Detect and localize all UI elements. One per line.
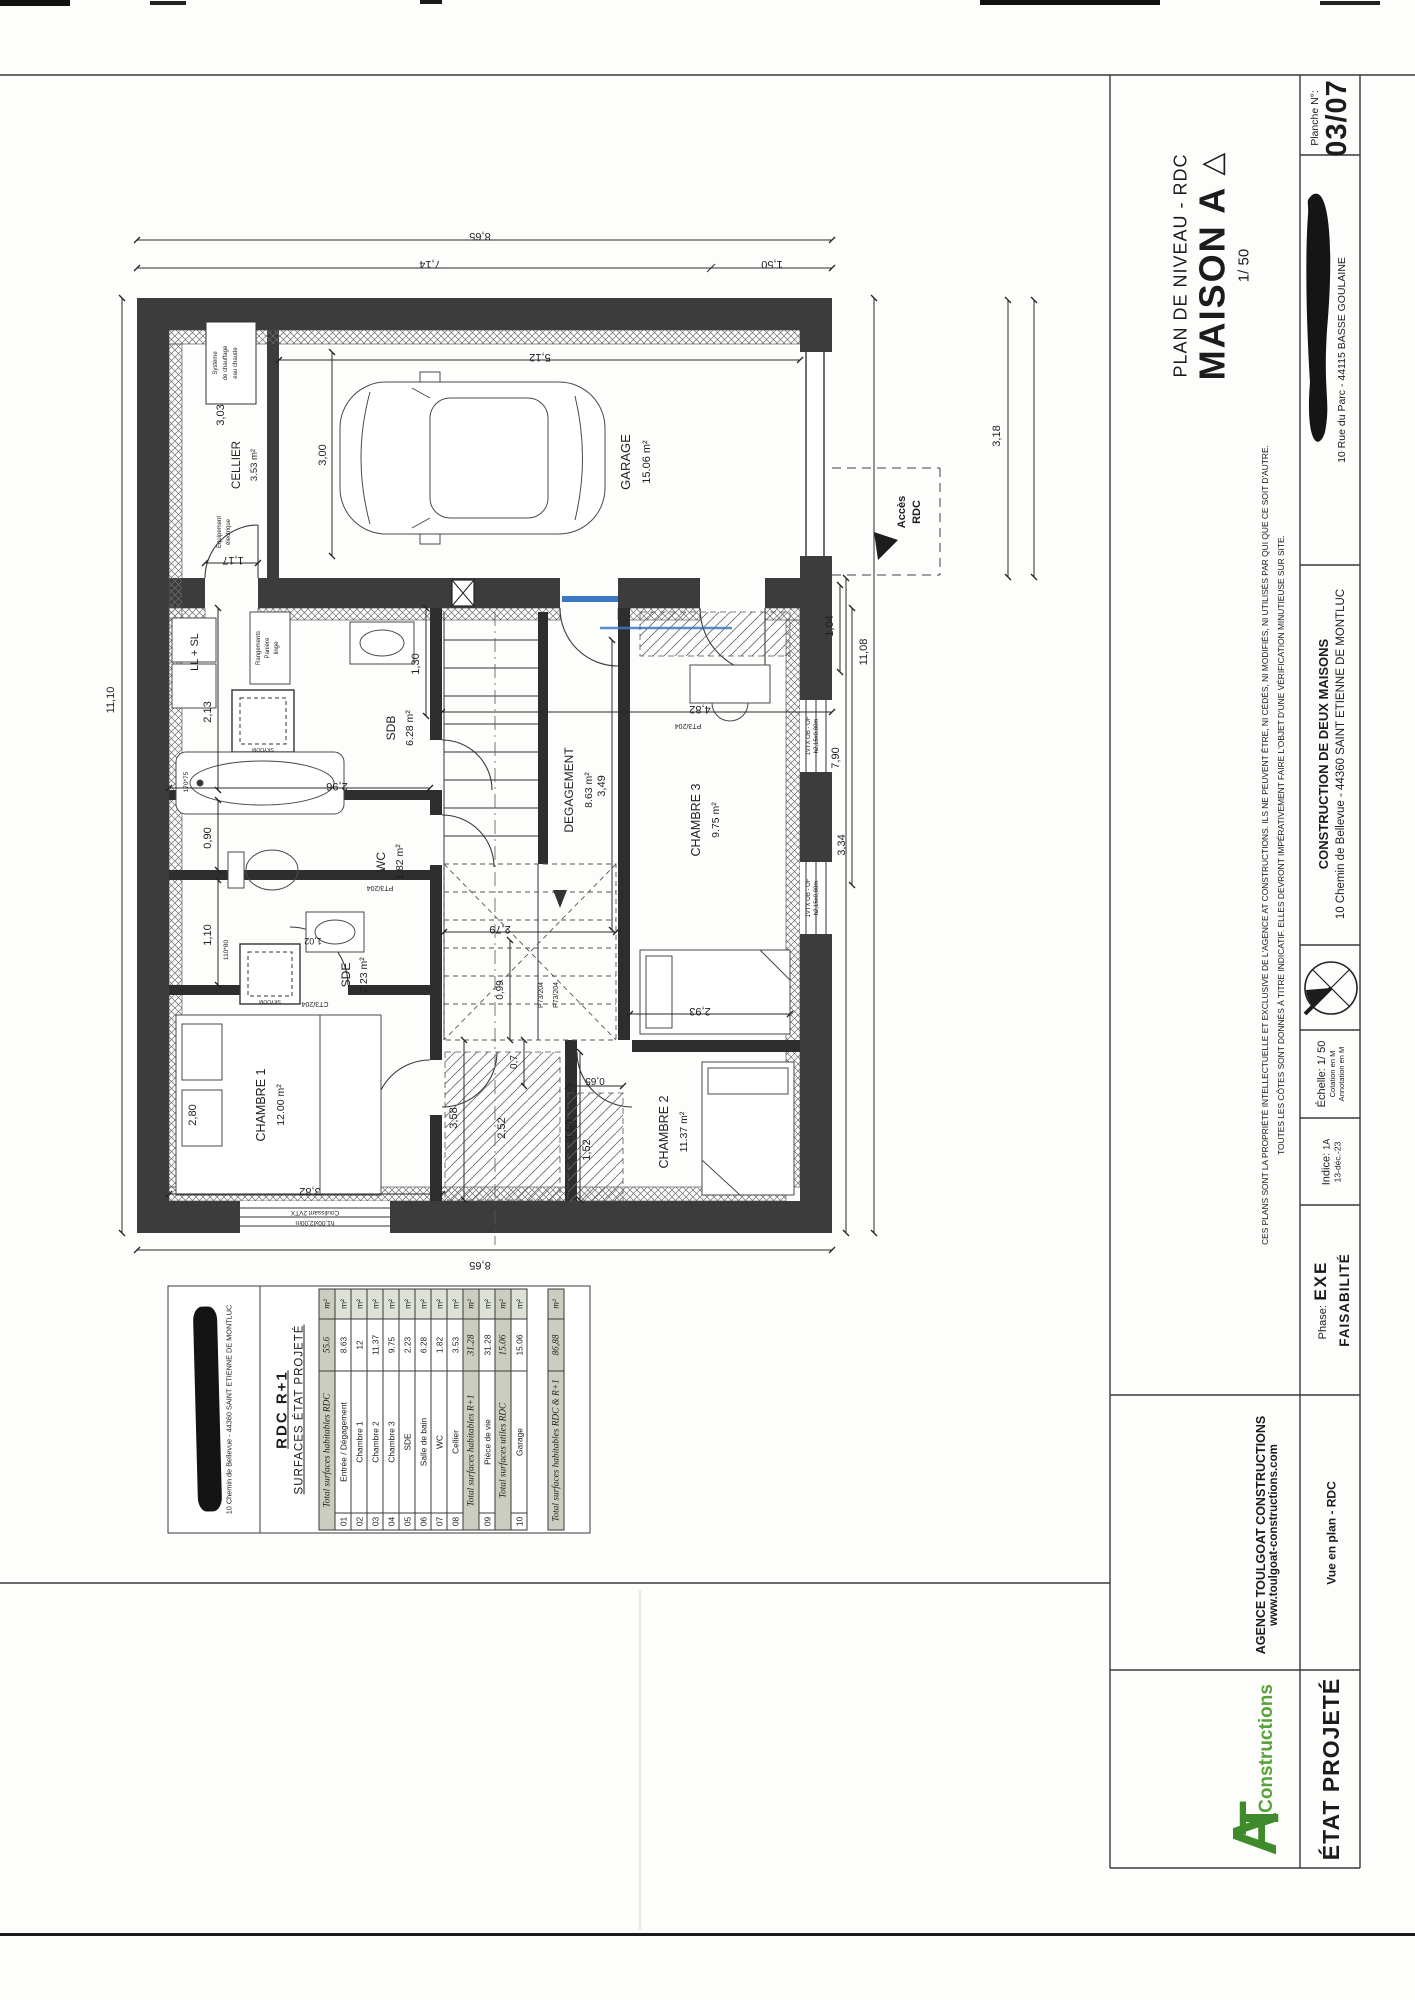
table-cell: 3.53 <box>447 1319 463 1371</box>
scale-box: Échelle: 1/ 50 Cotation en M Annotation … <box>1302 1032 1360 1116</box>
svg-text:1,04: 1,04 <box>824 615 836 636</box>
svg-text:Equipement: Equipement <box>217 516 223 548</box>
svg-text:11,10: 11,10 <box>105 687 117 714</box>
table-cell: Total surfaces habitables RDC <box>319 1371 335 1530</box>
table-cell: 08 <box>447 1513 463 1530</box>
table-cell: 04 <box>383 1513 399 1530</box>
svg-text:0,99: 0,99 <box>495 980 506 1000</box>
indice-box: Indice: 1A 13-déc.-23 <box>1302 1120 1360 1203</box>
floor-plan: GARAGE 15.06 m² CELLIER 3.53 m² SDB 6.28… <box>105 230 1034 1271</box>
svg-text:P73/204: P73/204 <box>553 982 560 1008</box>
table-cell: Pièce de vie <box>479 1371 495 1513</box>
table-cell: Chambre 1 <box>351 1371 367 1513</box>
table-row: 07WC1.82m² <box>431 1289 447 1530</box>
table-row: 08Cellier3.53m² <box>447 1289 463 1530</box>
svg-text:Accès: Accès <box>896 496 908 528</box>
disclaimer-block: CES PLANS SONT LA PROPRIÉTÉ INTELLECTUEL… <box>1252 445 1296 1245</box>
table-cell: 2.23 <box>399 1319 415 1371</box>
svg-text:eau chaude: eau chaude <box>233 347 239 379</box>
logo-subtitle: Constructions <box>1256 1684 1278 1813</box>
svg-text:3,58: 3,58 <box>448 1107 460 1128</box>
svg-text:0,65: 0,65 <box>585 1075 605 1086</box>
table-cell: 12 <box>351 1319 367 1371</box>
svg-text:1,30: 1,30 <box>410 653 422 674</box>
svg-text:1.82 m²: 1.82 m² <box>394 844 406 880</box>
north-compass-icon <box>1305 962 1357 1014</box>
agency-name: AGENCE TOULGOAT CONSTRUCTIONS <box>1254 1416 1268 1654</box>
table-cell: m² <box>415 1289 431 1319</box>
table-cell: m² <box>511 1289 527 1319</box>
table-row: 01Entrée / Dégagement8.63m² <box>335 1289 351 1530</box>
svg-text:Coulissant 2VTX: Coulissant 2VTX <box>290 1209 339 1216</box>
svg-text:RDC: RDC <box>911 500 923 524</box>
table-heading-main: RDC R+1 <box>273 1370 290 1449</box>
svg-text:Système: Système <box>213 351 219 375</box>
svg-text:6.28 m²: 6.28 m² <box>404 710 416 746</box>
agency-website: www.toulgoat-constructions.com <box>1268 1444 1280 1626</box>
table-row: 05SDE2.23m² <box>399 1289 415 1530</box>
svg-text:0,90: 0,90 <box>202 827 214 848</box>
table-section-header: Total surfaces habitables RDC & R+186,88… <box>548 1289 564 1530</box>
table-section-header: Total surfaces habitables RDC55.6m² <box>319 1289 335 1530</box>
table-row: 03Chambre 211.37m² <box>367 1289 383 1530</box>
table-cell: m² <box>319 1289 335 1319</box>
table-cell: 9.75 <box>383 1319 399 1371</box>
svg-text:2,93: 2,93 <box>689 1005 710 1017</box>
phase-row: Phase: EXE <box>1311 1261 1331 1340</box>
scale-value: 1/ 50 <box>1316 1041 1328 1065</box>
table-cell: 15.06 <box>495 1319 511 1371</box>
phase-label: Phase: <box>1317 1305 1329 1339</box>
svg-text:PT3/204: PT3/204 <box>675 722 702 729</box>
table-cell: 8.63 <box>335 1319 351 1371</box>
table-cell: 07 <box>431 1513 447 1530</box>
svg-text:11,08: 11,08 <box>858 639 870 666</box>
client-box: 10 Chemin de Bellevue - 44360 SAINT ETIE… <box>168 1286 260 1532</box>
indice-label: Indice: <box>1320 1152 1332 1184</box>
porch-outline <box>832 468 940 575</box>
table-cell: Entrée / Dégagement <box>335 1371 351 1513</box>
annotation-note: Annotation en M <box>1337 1047 1346 1102</box>
svg-text:4,00: 4,00 <box>564 1119 576 1140</box>
table-cell: Total surfaces utiles RDC <box>495 1371 511 1530</box>
svg-text:CHAMBRE 3: CHAMBRE 3 <box>689 783 703 856</box>
client-name-redaction <box>192 1306 221 1512</box>
table-cell: 09 <box>479 1513 495 1530</box>
svg-text:1VTX OB - OF: 1VTX OB - OF <box>806 878 812 917</box>
svg-text:GARAGE: GARAGE <box>618 434 633 490</box>
table-cell: m² <box>335 1289 351 1319</box>
indice-date: 13-déc.-23 <box>1332 1141 1342 1182</box>
svg-text:SKYDOM: SKYDOM <box>252 746 274 752</box>
table-section-header: Total surfaces habitables R+131.28m² <box>463 1289 479 1530</box>
site-address: 10 Rue du Parc - 44115 BASSE GOULAINE <box>1336 257 1348 463</box>
svg-text:PT3/204: PT3/204 <box>367 884 394 891</box>
svg-text:110*80: 110*80 <box>223 940 230 961</box>
svg-text:CELLIER: CELLIER <box>231 441 243 489</box>
table-cell: m² <box>431 1289 447 1319</box>
table-cell: 55.6 <box>319 1319 335 1371</box>
at-constructions-logo-icon: A T Constructions <box>1228 1684 1284 1856</box>
svg-text:WC: WC <box>374 852 388 872</box>
agency-block: AGENCE TOULGOAT CONSTRUCTIONS www.toulgo… <box>1238 1402 1296 1668</box>
table-cell: m² <box>495 1289 511 1319</box>
doc-type-box: ÉTAT PROJETÉ <box>1302 1672 1360 1866</box>
table-cell: Salle de bain <box>415 1371 431 1513</box>
svg-text:CHAMBRE 1: CHAMBRE 1 <box>254 1068 268 1141</box>
svg-text:7,14: 7,14 <box>419 258 440 270</box>
svg-text:3,03: 3,03 <box>215 404 227 425</box>
table-cell: 15.06 <box>511 1319 527 1371</box>
triangle-icon: △ <box>1194 150 1229 175</box>
planche-box: Planche N°: 03/07 <box>1302 78 1360 158</box>
svg-text:1,10: 1,10 <box>202 924 214 945</box>
table-cell: m² <box>399 1289 415 1319</box>
svg-text:3,82: 3,82 <box>299 1185 320 1197</box>
svg-text:1,52: 1,52 <box>581 1139 593 1160</box>
surface-table-section: Total surfaces habitables RDC55.6m²01Ent… <box>318 1288 527 1530</box>
table-row: 10Garage15.06m² <box>511 1289 527 1530</box>
table-cell: 31.28 <box>479 1319 495 1371</box>
table-cell: m² <box>383 1289 399 1319</box>
table-cell: 03 <box>367 1513 383 1530</box>
table-row: 06Salle de bain6.28m² <box>415 1289 431 1530</box>
svg-text:h2,15x0,80m: h2,15x0,80m <box>814 719 820 754</box>
indice-row: Indice: 1A <box>1320 1138 1332 1185</box>
table-cell: 6.28 <box>415 1319 431 1371</box>
plan-scale: 1/ 50 <box>1235 248 1252 281</box>
client-address: 10 Chemin de Bellevue - 44360 SAINT ETIE… <box>224 1304 233 1514</box>
svg-text:SDB: SDB <box>384 716 398 741</box>
table-row: 09Pièce de vie31.28m² <box>479 1289 495 1530</box>
svg-text:1VTX OB - OF: 1VTX OB - OF <box>806 716 812 755</box>
table-cell: SDE <box>399 1371 415 1513</box>
surfaces-table-block: 10 Chemin de Bellevue - 44360 SAINT ETIE… <box>167 1285 590 1533</box>
svg-text:1,02: 1,02 <box>304 936 322 946</box>
scale-row: Échelle: 1/ 50 <box>1316 1041 1328 1108</box>
table-heading-sub: SURFACES ÉTAT PROJETÉ <box>293 1324 305 1494</box>
project-title: CONSTRUCTION DE DEUX MAISONS <box>1316 639 1331 869</box>
svg-text:Rangements: Rangements <box>256 631 262 665</box>
duct-box <box>452 580 474 606</box>
svg-text:3,34: 3,34 <box>836 834 848 855</box>
table-cell: m² <box>367 1289 383 1319</box>
table-section-header: Total surfaces utiles RDC15.06m² <box>495 1289 511 1530</box>
table-row: 02Chambre 112m² <box>351 1289 367 1530</box>
table-rows-host: Total surfaces habitables RDC55.6m²01Ent… <box>318 1288 564 1530</box>
svg-text:SDE: SDE <box>339 963 353 988</box>
indice-value: 1A <box>1321 1138 1331 1149</box>
plan-level-title: PLAN DE NIVEAU - RDC <box>1170 153 1191 377</box>
surfaces-table: 10 Chemin de Bellevue - 44360 SAINT ETIE… <box>167 1285 590 1533</box>
svg-text:3.53 m²: 3.53 m² <box>249 449 260 481</box>
svg-text:8,65: 8,65 <box>469 230 490 242</box>
table-gap <box>527 1288 547 1530</box>
svg-text:2,96: 2,96 <box>326 780 347 792</box>
cotation-note: Cotation en M <box>1328 1051 1337 1098</box>
table-cell: m² <box>463 1289 479 1319</box>
svg-text:2,13: 2,13 <box>202 701 214 722</box>
table-cell: 05 <box>399 1513 415 1530</box>
table-cell: Total surfaces habitables R+1 <box>463 1371 479 1530</box>
doc-type: ÉTAT PROJETÉ <box>1318 1678 1345 1860</box>
svg-text:170*75: 170*75 <box>183 771 190 792</box>
scanned-plan-sheet: GARAGE 15.06 m² CELLIER 3.53 m² SDB 6.28… <box>0 0 1415 2000</box>
svg-text:h1,00xl2,00m: h1,00xl2,00m <box>295 1219 334 1226</box>
project-address: 10 Chemin de Bellevue - 44360 SAINT ETIE… <box>1335 589 1347 919</box>
table-cell: Cellier <box>447 1371 463 1513</box>
access-arrow-icon <box>874 532 898 560</box>
svg-text:8.63 m²: 8.63 m² <box>583 772 595 808</box>
table-cell: 11.37 <box>367 1319 383 1371</box>
svg-text:15.06 m²: 15.06 m² <box>641 440 653 484</box>
stair-direction-arrow-icon <box>553 890 567 908</box>
svg-text:9.75 m²: 9.75 m² <box>710 802 722 838</box>
planche-label: Planche N°: <box>1309 90 1321 146</box>
disclaimer-line-2: TOUTES LES CÔTES SONT DONNÉS À TITRE IND… <box>1274 535 1290 1155</box>
svg-text:4,82: 4,82 <box>689 703 710 715</box>
svg-text:CT3/204: CT3/204 <box>301 1000 328 1007</box>
svg-text:linge: linge <box>274 641 280 654</box>
svg-text:12.00 m²: 12.00 m² <box>275 1084 287 1126</box>
svg-text:Panière: Panière <box>265 637 271 658</box>
svg-text:3,00: 3,00 <box>317 444 329 465</box>
disclaimer-line-1: CES PLANS SONT LA PROPRIÉTÉ INTELLECTUEL… <box>1258 445 1274 1245</box>
svg-text:électrique: électrique <box>226 518 232 545</box>
svg-text:2,52: 2,52 <box>496 1117 508 1138</box>
svg-text:0,7: 0,7 <box>509 1055 520 1069</box>
table-cell: 10 <box>511 1513 527 1530</box>
table-cell: m² <box>351 1289 367 1319</box>
svg-text:SKYDOM: SKYDOM <box>259 998 281 1004</box>
scale-label: Échelle: <box>1316 1068 1328 1107</box>
svg-text:8,65: 8,65 <box>469 1259 490 1271</box>
house-title: MAISON A △ <box>1191 150 1233 380</box>
svg-text:1,17: 1,17 <box>222 554 243 566</box>
table-cell: 01 <box>335 1513 351 1530</box>
svg-text:LL + SL: LL + SL <box>189 633 201 671</box>
table-cell: 06 <box>415 1513 431 1530</box>
svg-text:P73/204: P73/204 <box>538 982 545 1008</box>
car-icon <box>340 372 605 544</box>
house-title-text: MAISON A <box>1191 185 1233 380</box>
svg-text:3,49: 3,49 <box>596 775 608 796</box>
svg-text:11.37 m²: 11.37 m² <box>678 1111 690 1152</box>
table-headings: RDC R+1 SURFACES ÉTAT PROJETÉ <box>260 1324 318 1494</box>
surface-table-section: Total surfaces habitables RDC & R+186,88… <box>547 1288 564 1530</box>
view-name-box: Vue en plan - RDC <box>1302 1397 1360 1668</box>
table-cell: Chambre 3 <box>383 1371 399 1513</box>
svg-text:5,12: 5,12 <box>529 351 550 363</box>
view-name: Vue en plan - RDC <box>1324 1481 1338 1585</box>
status-faisabilite: FAISABILITÉ <box>1337 1253 1352 1347</box>
table-cell: m² <box>479 1289 495 1319</box>
svg-text:3,18: 3,18 <box>991 425 1003 446</box>
site-address-box: 10 Rue du Parc - 44115 BASSE GOULAINE <box>1302 160 1360 560</box>
svg-text:2.23 m²: 2.23 m² <box>358 957 370 993</box>
svg-text:1,50: 1,50 <box>761 258 782 270</box>
planche-number: 03/07 <box>1321 79 1354 157</box>
svg-text:7,90: 7,90 <box>830 747 842 768</box>
project-box: CONSTRUCTION DE DEUX MAISONS 10 Chemin d… <box>1302 565 1360 943</box>
table-cell: Total surfaces habitables RDC & R+1 <box>548 1371 564 1530</box>
table-cell: m² <box>548 1289 564 1319</box>
svg-text:DEGAGEMENT: DEGAGEMENT <box>562 747 576 833</box>
svg-text:CHAMBRE 2: CHAMBRE 2 <box>657 1095 671 1168</box>
table-cell: m² <box>447 1289 463 1319</box>
table-cell: 31.28 <box>463 1319 479 1371</box>
table-row: 04Chambre 39.75m² <box>383 1289 399 1530</box>
phase-value: EXE <box>1311 1261 1330 1301</box>
table-cell: Garage <box>511 1371 527 1513</box>
svg-text:de chauffage: de chauffage <box>223 345 229 380</box>
table-cell: Chambre 2 <box>367 1371 383 1513</box>
svg-text:2,79: 2,79 <box>489 923 510 935</box>
table-cell: 02 <box>351 1513 367 1530</box>
svg-text:h2,15x0,80m: h2,15x0,80m <box>814 881 820 916</box>
phase-box: Phase: EXE FAISABILITÉ <box>1302 1207 1360 1393</box>
sheet-title-block: PLAN DE NIVEAU - RDC MAISON A △ 1/ 50 <box>1118 85 1303 445</box>
table-cell: 1.82 <box>431 1319 447 1371</box>
table-cell: 86,88 <box>548 1319 564 1371</box>
svg-text:2,80: 2,80 <box>187 1104 199 1125</box>
agency-logo-block: A T Constructions <box>1212 1674 1300 1866</box>
table-cell: WC <box>431 1371 447 1513</box>
